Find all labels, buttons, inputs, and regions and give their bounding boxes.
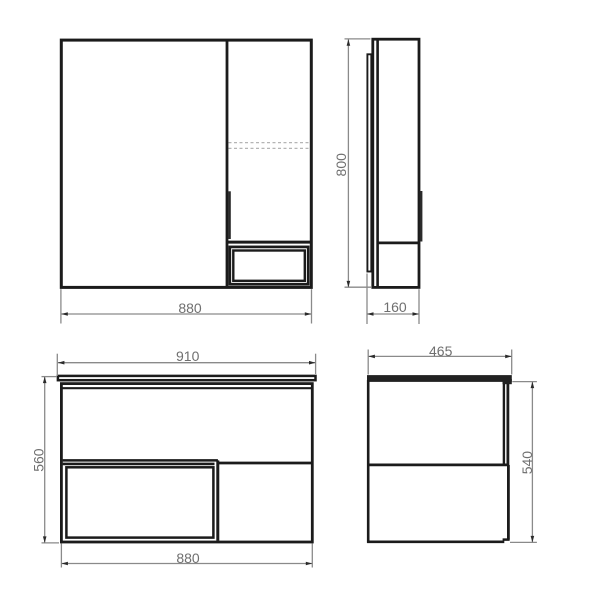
svg-text:800: 800 [333, 153, 349, 177]
svg-text:465: 465 [429, 343, 453, 359]
svg-text:560: 560 [31, 448, 47, 472]
svg-text:910: 910 [176, 348, 200, 364]
svg-text:160: 160 [383, 299, 407, 315]
svg-text:880: 880 [178, 300, 202, 316]
svg-text:880: 880 [176, 550, 200, 566]
svg-text:540: 540 [519, 451, 535, 475]
